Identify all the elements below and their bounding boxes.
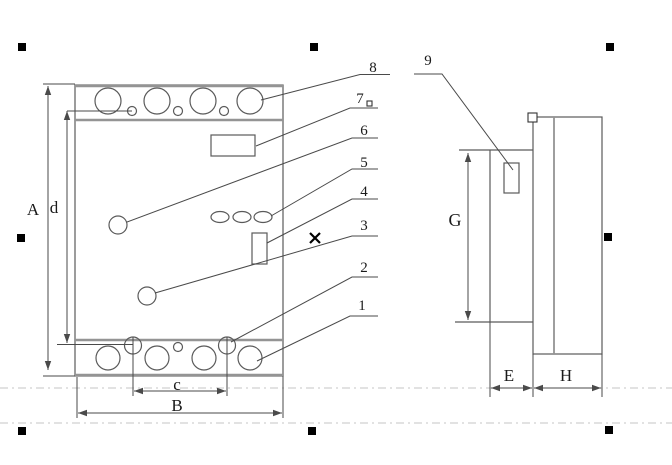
front-view-dimensions: A d c B bbox=[27, 84, 283, 418]
button-circle bbox=[109, 216, 127, 234]
terminal-hole bbox=[192, 346, 216, 370]
breaker-body-outline bbox=[75, 85, 283, 376]
terminal-hole bbox=[96, 346, 120, 370]
dim-label-G: G bbox=[449, 210, 462, 230]
terminal-hole bbox=[95, 88, 121, 114]
selection-handle-bottom-center[interactable] bbox=[308, 427, 316, 435]
callout-label-5: 5 bbox=[360, 155, 368, 171]
callout-leader-8 bbox=[261, 75, 390, 101]
indicator-ellipse bbox=[233, 212, 251, 223]
drawing-canvas: A d c B G E H bbox=[0, 0, 672, 465]
selection-handle-bottom-left[interactable] bbox=[18, 427, 26, 435]
selection-handle-top-left[interactable] bbox=[18, 43, 26, 51]
dim-label-d: d bbox=[50, 198, 59, 217]
selection-handle-middle-left[interactable] bbox=[17, 234, 25, 242]
callout-label-7: 7 bbox=[356, 91, 364, 107]
button-circle bbox=[138, 287, 156, 305]
side-view-dimensions: G E H bbox=[449, 153, 603, 397]
selection-center-mark[interactable] bbox=[310, 233, 320, 243]
indicator-ellipse bbox=[254, 212, 272, 223]
callout-leader-2 bbox=[231, 277, 378, 342]
callout-leader-6 bbox=[127, 138, 378, 222]
callouts: 8 9 7 6 5 4 3 2 1 bbox=[127, 53, 513, 361]
terminal-hole bbox=[237, 88, 263, 114]
callout-label-6: 6 bbox=[360, 123, 368, 139]
selection-handle-bottom-right[interactable] bbox=[605, 426, 613, 434]
dim-label-H: H bbox=[560, 366, 572, 385]
terminal-hole bbox=[238, 346, 262, 370]
selection-handle-middle-right[interactable] bbox=[604, 233, 612, 241]
dim-label-B: B bbox=[171, 396, 182, 415]
small-hole bbox=[174, 107, 183, 116]
callout-label-3: 3 bbox=[360, 218, 368, 234]
callout-leader-9 bbox=[414, 74, 513, 170]
callout-label-9: 9 bbox=[424, 53, 432, 69]
side-view bbox=[455, 113, 602, 354]
handle-slot-rect bbox=[252, 233, 267, 264]
callout-label-8: 8 bbox=[369, 60, 377, 76]
selection-handle-top-right[interactable] bbox=[606, 43, 614, 51]
nameplate-rect bbox=[211, 135, 255, 156]
callout-label-2: 2 bbox=[360, 260, 368, 276]
callout-leader-1 bbox=[257, 316, 378, 361]
dim-label-c: c bbox=[173, 375, 181, 394]
technical-drawing: A d c B G E H bbox=[0, 0, 672, 465]
selection-handle-top-center[interactable] bbox=[310, 43, 318, 51]
front-view bbox=[75, 85, 283, 376]
indicator-ellipse bbox=[211, 212, 229, 223]
terminal-hole bbox=[190, 88, 216, 114]
terminal-hole bbox=[144, 88, 170, 114]
dim-label-E: E bbox=[504, 366, 514, 385]
small-hole bbox=[220, 107, 229, 116]
side-body-outline bbox=[533, 117, 602, 354]
terminal-hole bbox=[145, 346, 169, 370]
callout-label-1: 1 bbox=[358, 298, 366, 314]
small-hole bbox=[174, 343, 183, 352]
dim-label-A: A bbox=[27, 200, 40, 219]
small-node-marker bbox=[367, 101, 372, 106]
corner-node-marker bbox=[528, 113, 537, 122]
callout-label-4: 4 bbox=[360, 184, 368, 200]
